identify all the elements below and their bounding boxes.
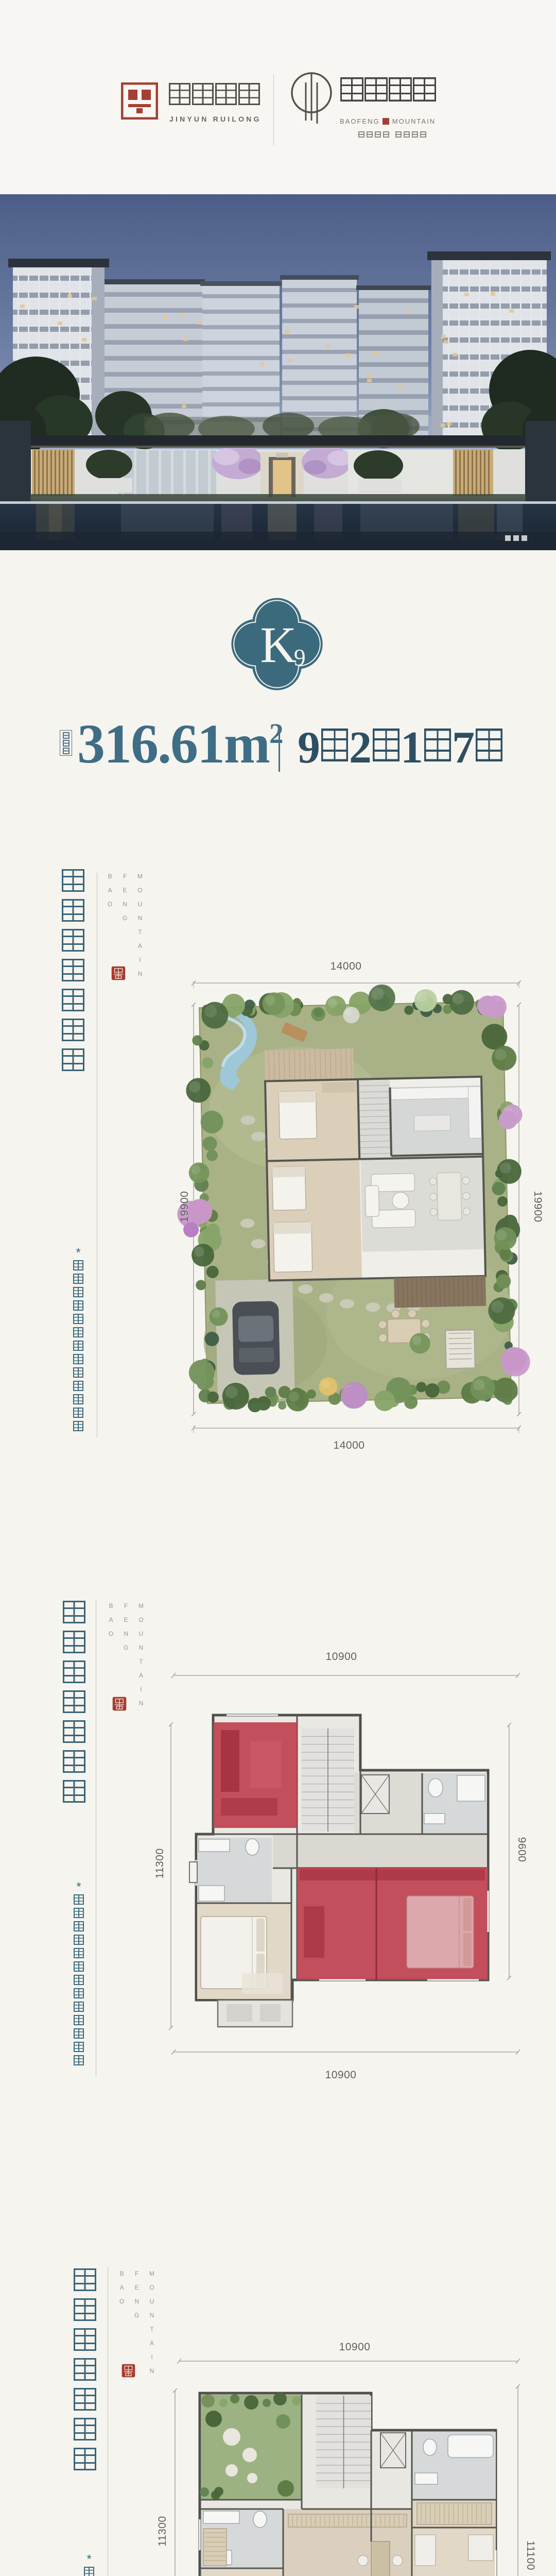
svg-text:9: 9 xyxy=(294,645,306,671)
svg-text:K: K xyxy=(260,617,297,674)
